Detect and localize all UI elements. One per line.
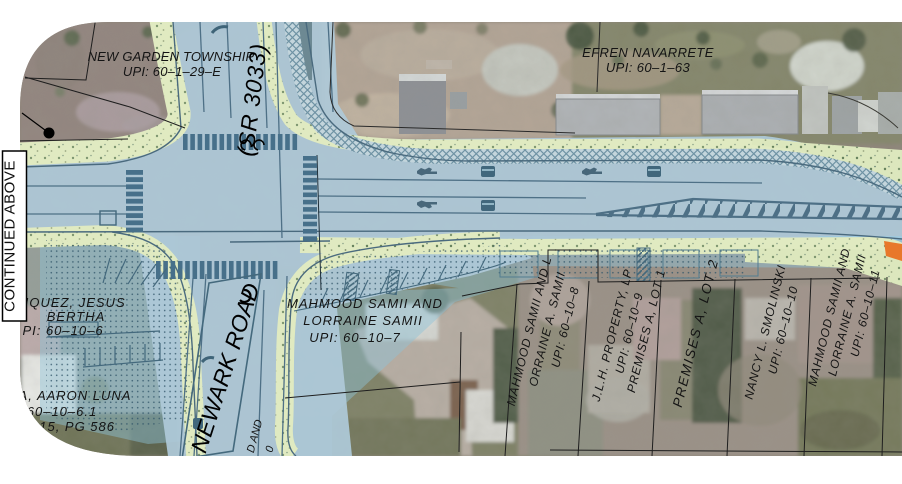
- svg-text:NEW GARDEN TOWNSHIP: NEW GARDEN TOWNSHIP: [88, 49, 255, 64]
- svg-text:CONTINUED ABOVE: CONTINUED ABOVE: [2, 160, 19, 312]
- svg-text:LORRAINE SAMII: LORRAINE SAMII: [303, 313, 422, 328]
- svg-text:BERTHA: BERTHA: [47, 309, 106, 324]
- svg-text:EFREN NAVARRETE: EFREN NAVARRETE: [582, 45, 714, 60]
- svg-text:UPI: 60–10–7: UPI: 60–10–7: [309, 330, 401, 345]
- svg-text:UPI: 60–1–63: UPI: 60–1–63: [606, 60, 691, 75]
- svg-text:60–10–6.1: 60–10–6.1: [27, 404, 97, 419]
- svg-text:PI: 60–10–6: PI: 60–10–6: [22, 323, 103, 338]
- svg-text:UPI: 60–1–29–E: UPI: 60–1–29–E: [123, 64, 221, 79]
- svg-text:215, PG 586: 215, PG 586: [30, 419, 115, 434]
- svg-text:MAHMOOD SAMII AND: MAHMOOD SAMII AND: [287, 296, 443, 311]
- svg-text:RIQUEZ, JESUS: RIQUEZ, JESUS: [14, 295, 125, 310]
- svg-text:A, AARON LUNA: A, AARON LUNA: [18, 388, 132, 403]
